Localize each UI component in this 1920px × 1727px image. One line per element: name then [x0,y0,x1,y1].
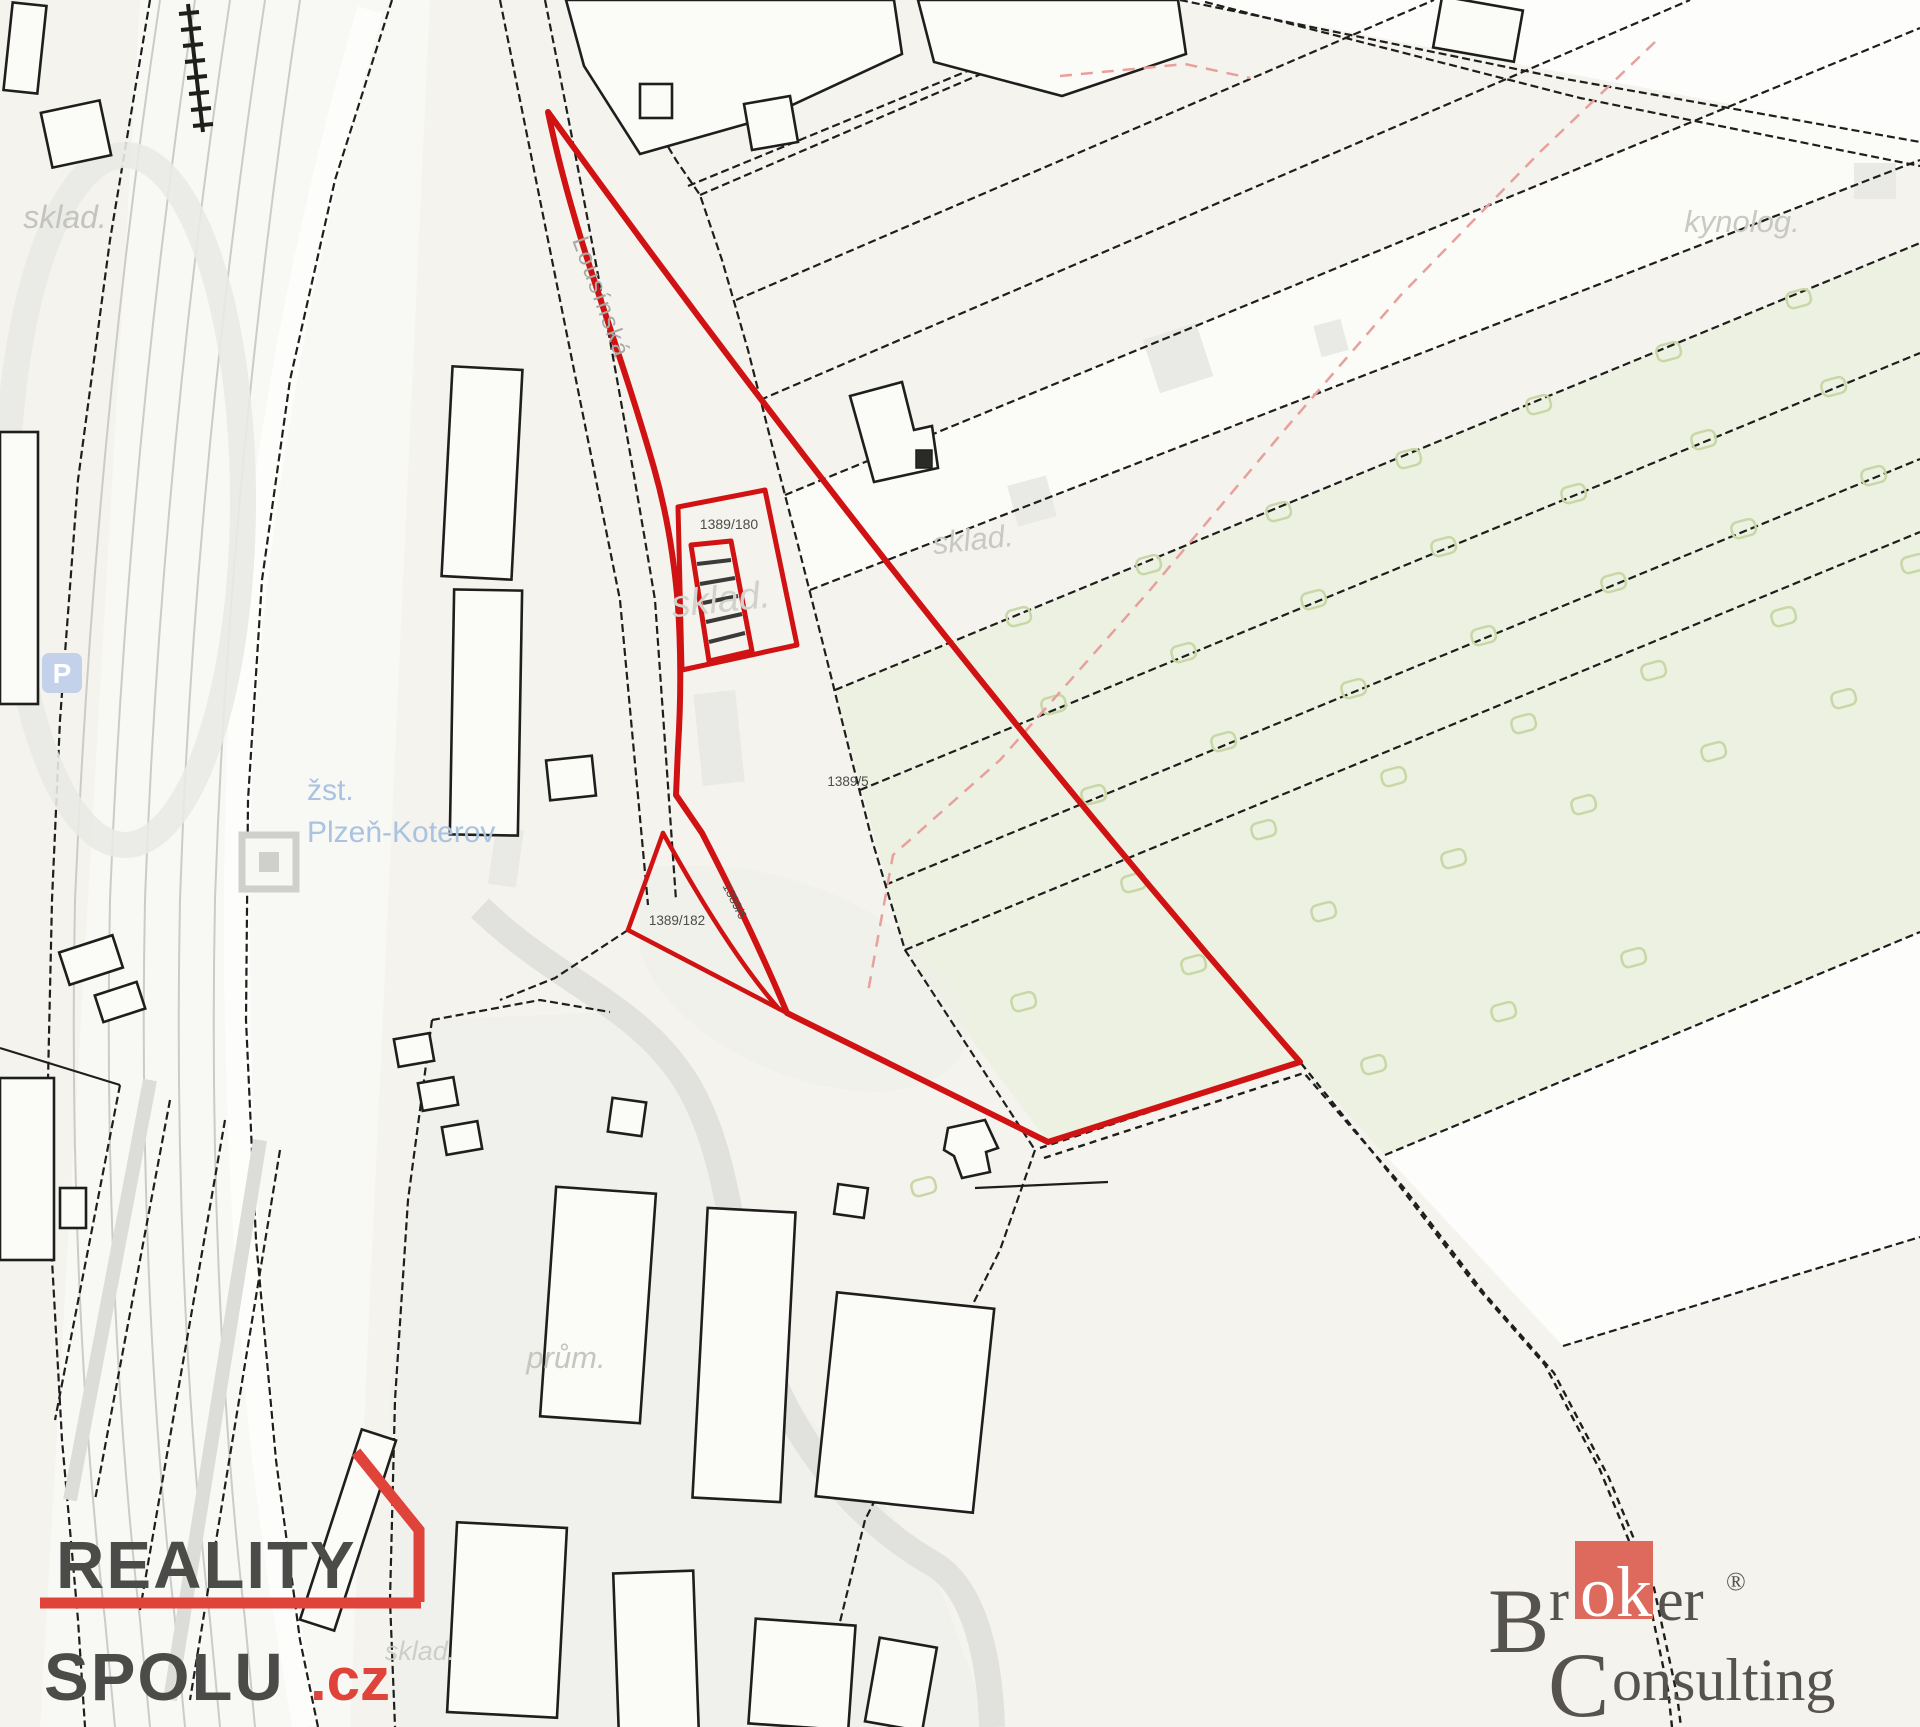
consulting-c: C [1548,1634,1609,1727]
map-canvas: P sklad. sklad. sklad. kynolog. prům. sk… [0,0,1920,1727]
label-sklad-bottom: sklad. [385,1636,456,1666]
cz-tld: .cz [310,1646,390,1713]
consulting-rest: onsulting [1612,1647,1835,1713]
broker-r: r [1549,1567,1569,1633]
broker-b: B [1488,1570,1549,1672]
parking-icon-letter: P [53,658,72,689]
station-icon [242,835,296,889]
label-prum: prům. [525,1340,605,1375]
label-parcel-1389-5: 1389/5 [827,774,868,789]
spolu-word: SPOLU [44,1640,285,1715]
label-parcel-1389-180: 1389/180 [700,516,759,532]
label-sklad-top-left: sklad. [23,199,107,235]
label-station-line1: žst. [307,774,354,807]
label-kynolog: kynolog. [1684,204,1799,239]
label-parcel-1389-182: 1389/182 [649,913,705,928]
registered-mark: ® [1726,1567,1746,1596]
broker-er: er [1657,1567,1704,1633]
parking-icon: P [42,653,82,693]
broker-ok: ok [1580,1552,1652,1632]
label-station-line2: Plzeň-Koterov [307,816,495,849]
cadastral-map: P sklad. sklad. sklad. kynolog. prům. sk… [0,0,1920,1727]
reality-word: REALITY [56,1528,357,1603]
